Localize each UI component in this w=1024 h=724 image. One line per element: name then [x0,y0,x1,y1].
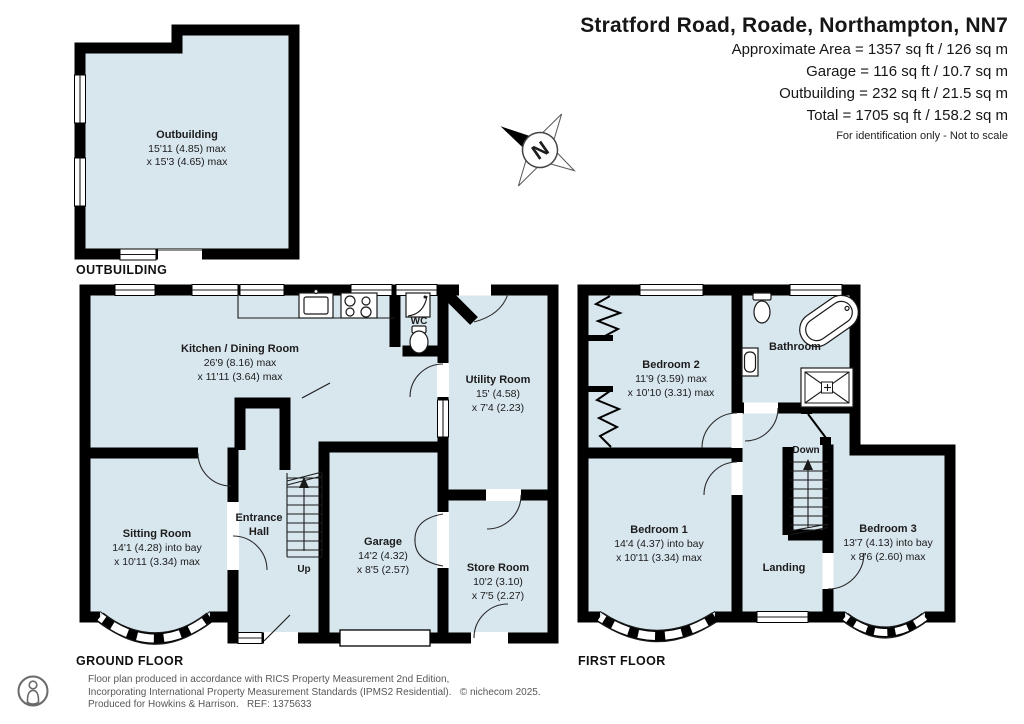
outbuilding-plan: Outbuilding 15'11 (4.85) max x 15'3 (4.6… [75,30,295,260]
disclaimer-note: For identification only - Not to scale [580,130,1008,142]
room-dim: 13'7 (4.13) into bay [843,537,933,549]
window [790,285,842,296]
door-opening [437,363,449,397]
bay-window [100,611,210,644]
door-opening [823,553,834,589]
room-dim: x 15'3 (4.65) max [147,156,229,168]
stairs-up-label: Up [297,564,310,575]
person-icon [19,677,48,706]
window [75,75,86,123]
room-label-bedroom-3: Bedroom 3 [859,523,916,535]
door-opening [486,489,521,501]
room-label-landing: Landing [763,562,806,574]
room-dim: 14'2 (4.32) [358,550,408,562]
room-label-bedroom-1: Bedroom 1 [630,524,687,536]
area-line: Approximate Area = 1357 sq ft / 126 sq m [580,39,1008,60]
ground-floor-plan: Kitchen / Dining Room 26'9 (8.16) max x … [80,285,554,647]
door-opening [437,512,449,568]
window [640,285,703,296]
room-label-bedroom-2: Bedroom 2 [642,359,699,371]
hob-icon [341,293,377,318]
window [75,158,86,206]
footer-line: Floor plan produced in accordance with R… [88,674,541,687]
door-opening [471,632,508,644]
room-dim: x 10'10 (3.31) max [628,387,715,399]
room-dim: x 10'11 (3.34) max [616,552,703,564]
window [240,285,284,296]
header: Stratford Road, Roade, Northampton, NN7 … [580,14,1008,142]
footer: Floor plan produced in accordance with R… [88,674,541,712]
ground-floor-caption: GROUND FLOOR [76,654,184,668]
stairs-down-label: Down [792,445,819,456]
outbuilding-caption: OUTBUILDING [76,263,167,277]
toilet-icon [410,326,428,353]
room-dim: 14'1 (4.28) into bay [112,542,202,554]
room-dim: x 11'11 (3.64) max [197,371,283,383]
footer-line: Incorporating International Property Mea… [88,687,541,700]
window [115,285,155,296]
room-dim: 15' (4.58) [476,388,520,400]
room-dim: x 7'5 (2.27) [472,590,524,602]
wc-basin [406,293,430,317]
window [238,633,262,644]
sink-icon [742,348,758,376]
room-label-wc: WC [411,316,428,327]
room-label-entrance-hall: Entrance [235,512,282,524]
room-label-kitchen: Kitchen / Dining Room [181,343,299,355]
room-dim: x 10'11 (3.34) max [114,556,201,568]
shower-icon [801,368,853,407]
room-dim: 14'4 (4.37) into bay [614,538,704,550]
floorplan-page: Outbuilding 15'11 (4.85) max x 15'3 (4.6… [0,0,1024,724]
room-label-sitting-room: Sitting Room [123,528,192,540]
area-line: Outbuilding = 232 sq ft / 21.5 sq m [580,83,1008,104]
room-dim: x 8'6 (2.60) max [851,551,927,563]
compass-rose: N [479,90,596,206]
bay-window [845,611,925,638]
area-line: Garage = 116 sq ft / 10.7 sq m [580,61,1008,82]
room-dim: x 8'5 (2.57) [357,564,409,576]
garage-door [340,630,430,646]
door-opening [459,285,491,296]
room-label-store-room: Store Room [467,562,530,574]
room-dim: x 7'4 (2.23) [472,402,524,414]
kitchen-sink [299,290,333,319]
door-opening [158,249,202,260]
bay-window [600,611,715,642]
room-label-bathroom: Bathroom [769,341,821,353]
room-dim: 10'2 (3.10) [473,576,523,588]
front-door-opening [264,632,298,644]
outbuilding-outline [80,30,294,254]
door-opening [732,413,743,448]
first-floor-caption: FIRST FLOOR [578,654,666,668]
area-line: Total = 1705 sq ft / 158.2 sq m [580,105,1008,126]
room-label-utility: Utility Room [466,374,531,386]
window [757,612,808,623]
window [120,249,156,260]
room-label-garage: Garage [364,536,402,548]
toilet-icon [753,293,771,323]
room-dim: 26'9 (8.16) max [204,357,277,369]
window [192,285,238,296]
room-dim: 15'11 (4.85) max [148,143,226,155]
door-opening [732,462,743,495]
door-opening [744,403,778,414]
room-label-outbuilding: Outbuilding [156,129,218,141]
room-dim: 11'9 (3.59) max [635,373,708,385]
room-label-entrance-hall-2: Hall [249,526,269,538]
window [438,400,449,437]
first-floor-plan: Bedroom 2 11'9 (3.59) max x 10'10 (3.31)… [583,285,950,642]
page-title: Stratford Road, Roade, Northampton, NN7 [580,14,1008,38]
footer-line: Produced for Howkins & Harrison. REF: 13… [88,699,541,712]
